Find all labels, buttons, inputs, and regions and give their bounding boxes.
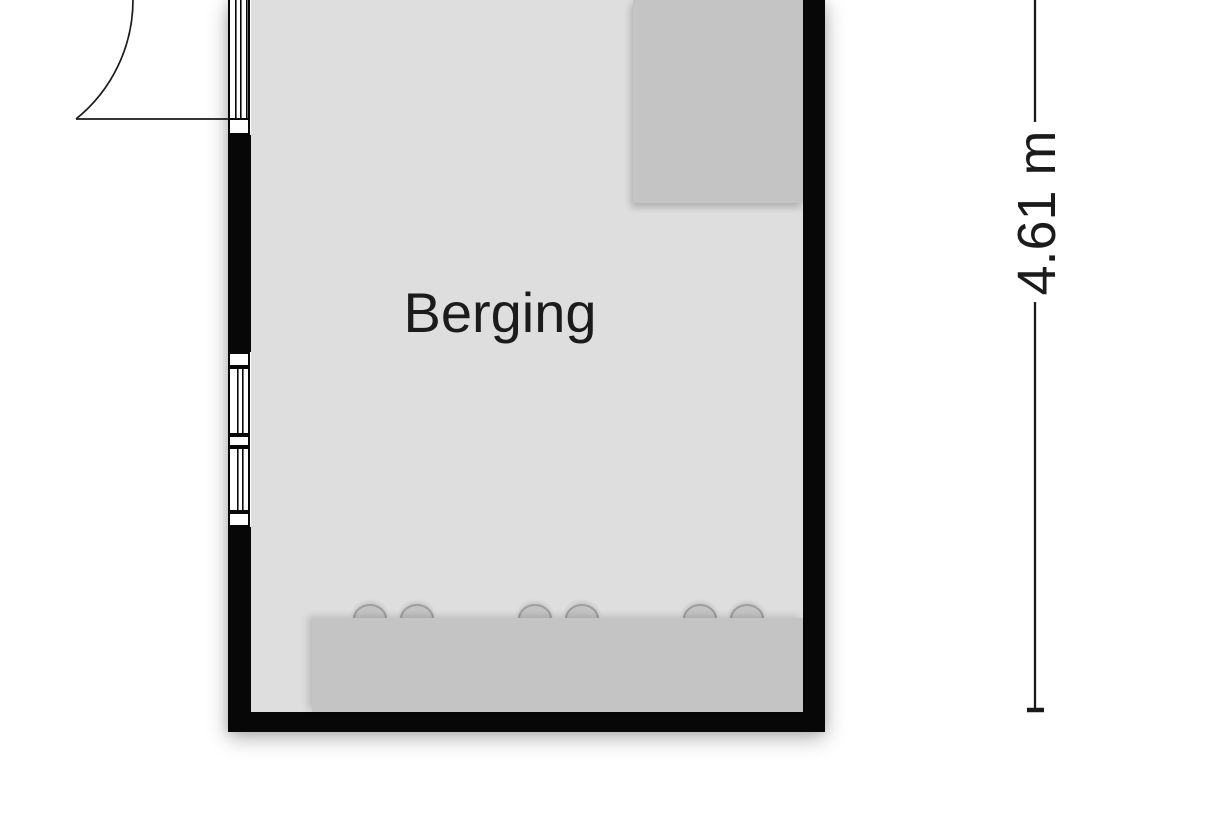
room-label: Berging bbox=[380, 283, 620, 343]
door-swing-arc-icon bbox=[76, 0, 133, 119]
workbench-counter bbox=[312, 618, 803, 712]
window-sill-upper bbox=[228, 352, 250, 367]
window-divider bbox=[228, 435, 250, 447]
door-panel-icon bbox=[228, 0, 250, 118]
window-pane-upper-icon bbox=[228, 367, 250, 435]
wall-left-lower bbox=[228, 527, 251, 732]
floorplan-canvas: Berging 4.61 m bbox=[0, 0, 1220, 813]
wall-right bbox=[803, 0, 825, 732]
wall-left-upper bbox=[228, 135, 251, 352]
wall-bottom bbox=[228, 712, 825, 732]
window-sill-lower bbox=[228, 512, 250, 527]
door-jamb bbox=[228, 118, 250, 135]
floorplan: Berging bbox=[228, 0, 825, 732]
storage-cabinet bbox=[633, 0, 803, 203]
dimension-label: 4.61 m bbox=[1007, 113, 1067, 313]
window-pane-lower-icon bbox=[228, 447, 250, 512]
